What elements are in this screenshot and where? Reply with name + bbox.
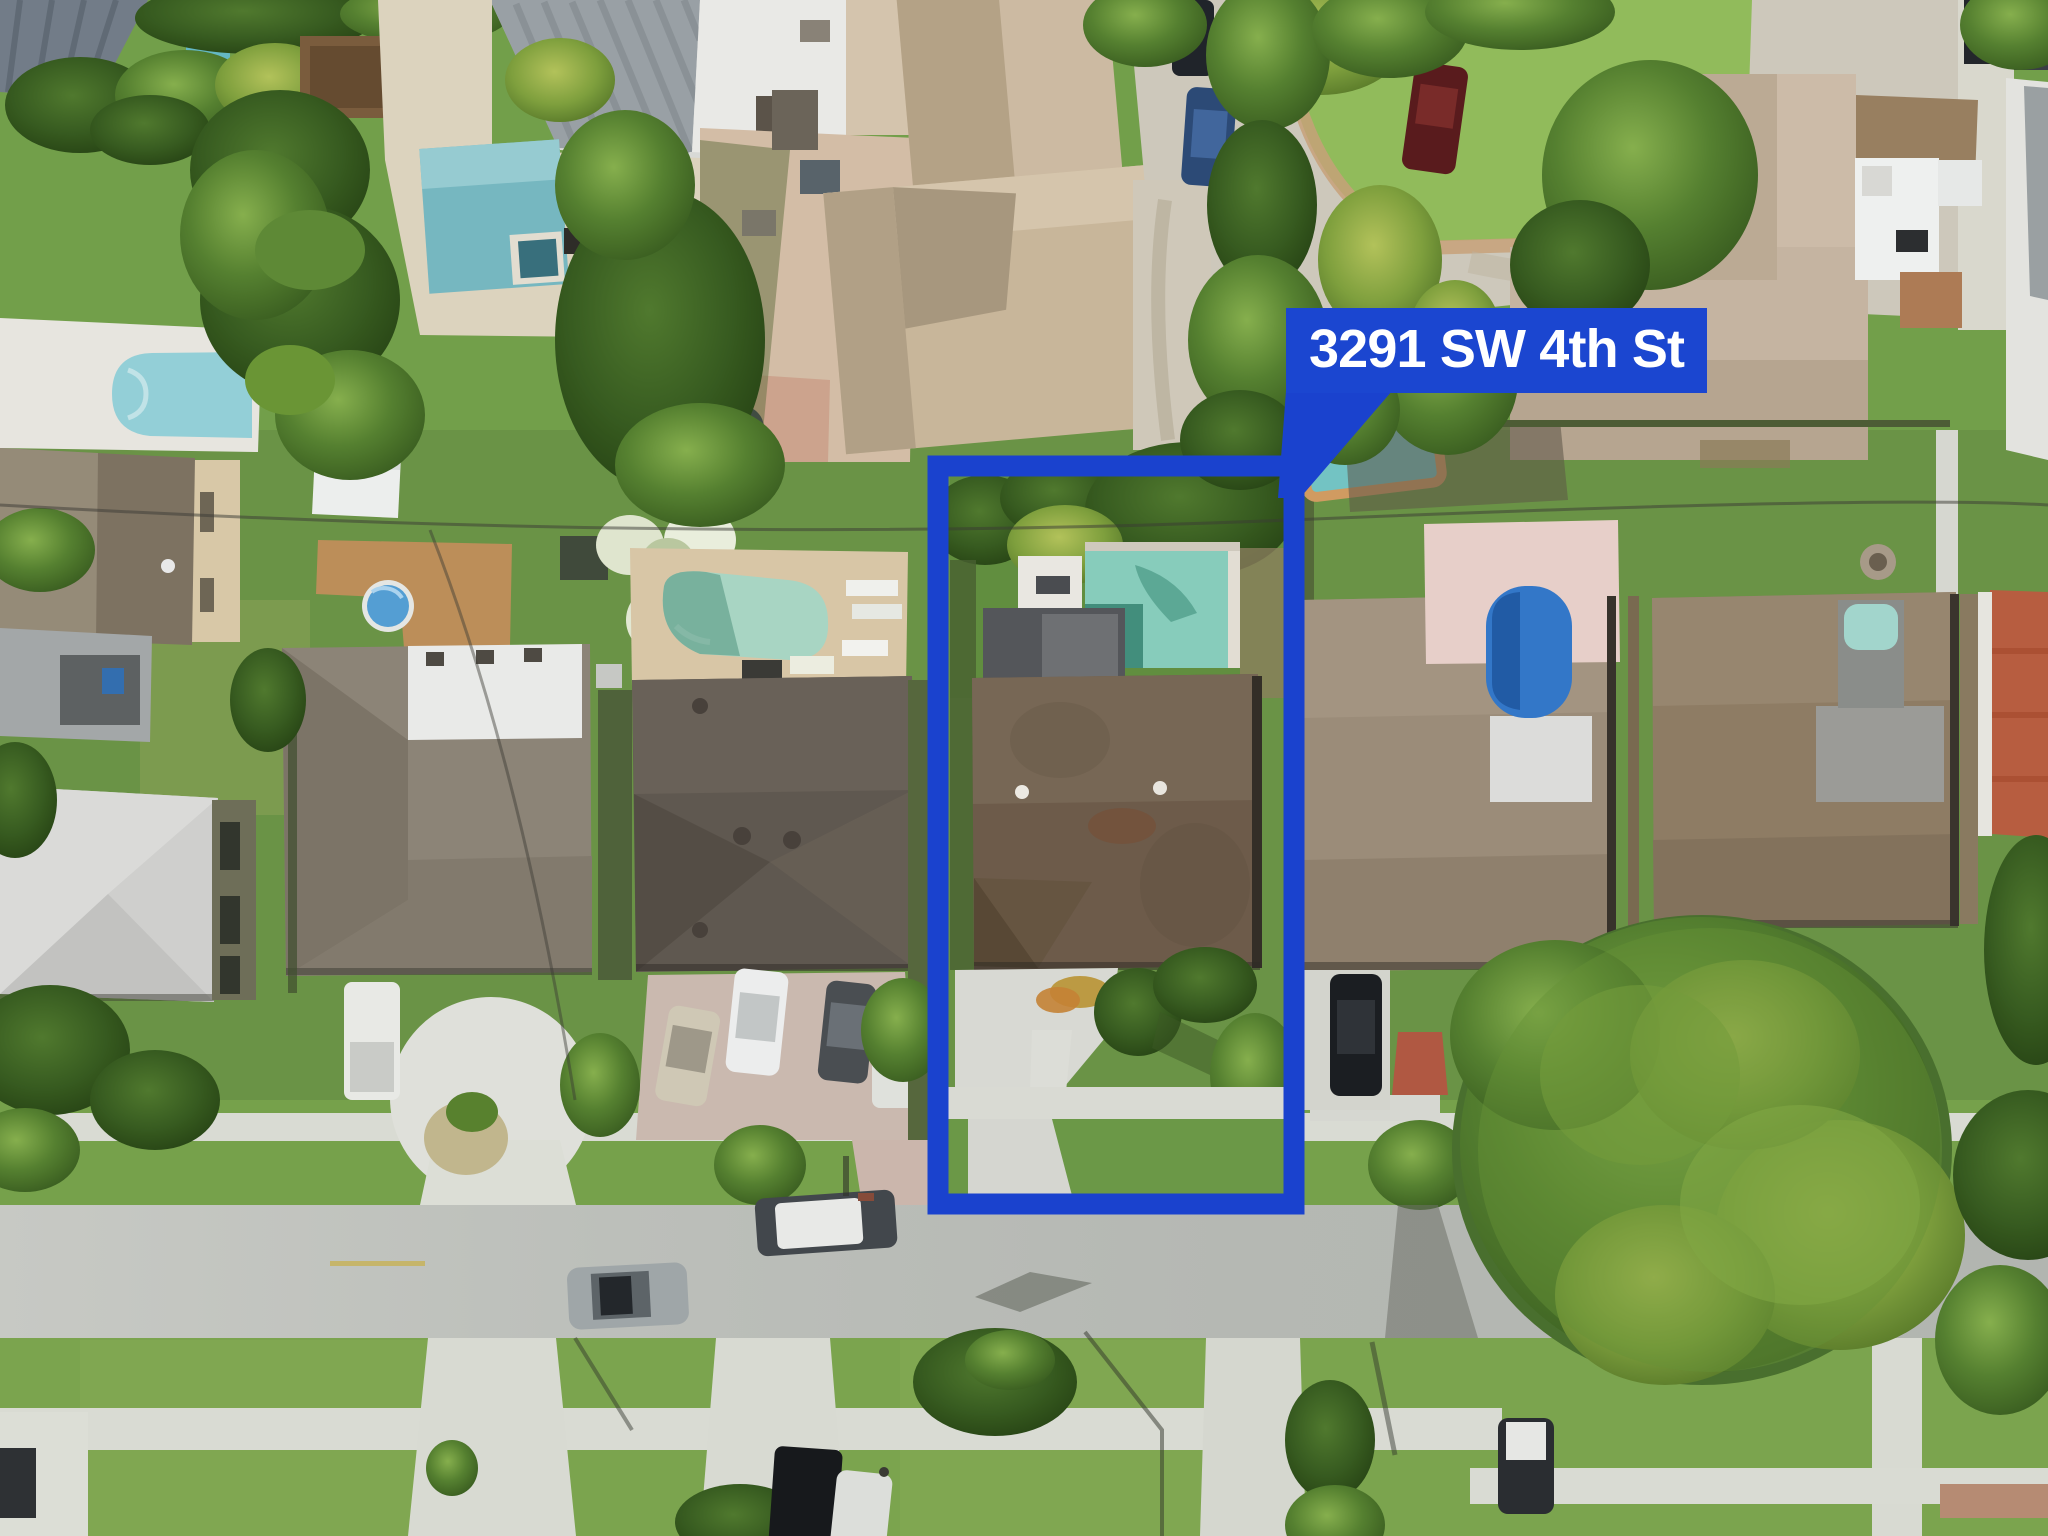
svg-text:3291 SW 4th St: 3291 SW 4th St <box>1309 319 1685 379</box>
